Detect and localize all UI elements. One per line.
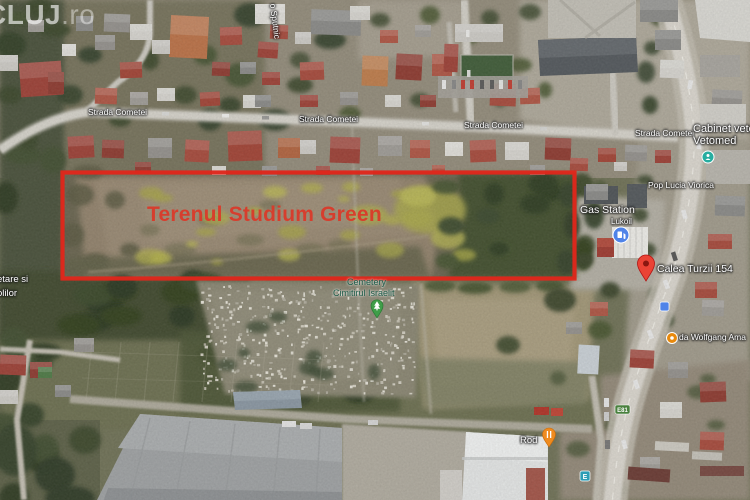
svg-text:E: E [583,474,588,481]
svg-text:E81: E81 [617,408,628,414]
